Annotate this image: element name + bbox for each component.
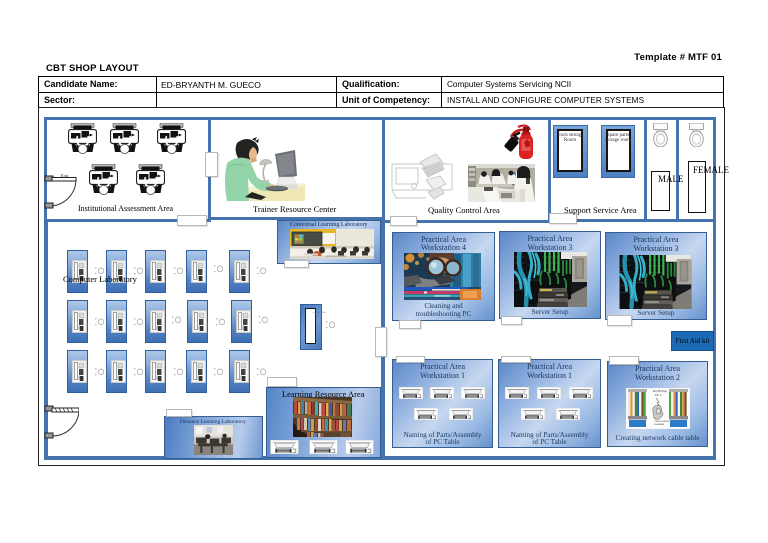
svg-text:Pin 1: Pin 1 [655,393,662,397]
svg-text:DIAGRAM: DIAGRAM [654,423,664,426]
svg-text:T568B WIRING: T568B WIRING [654,421,669,423]
